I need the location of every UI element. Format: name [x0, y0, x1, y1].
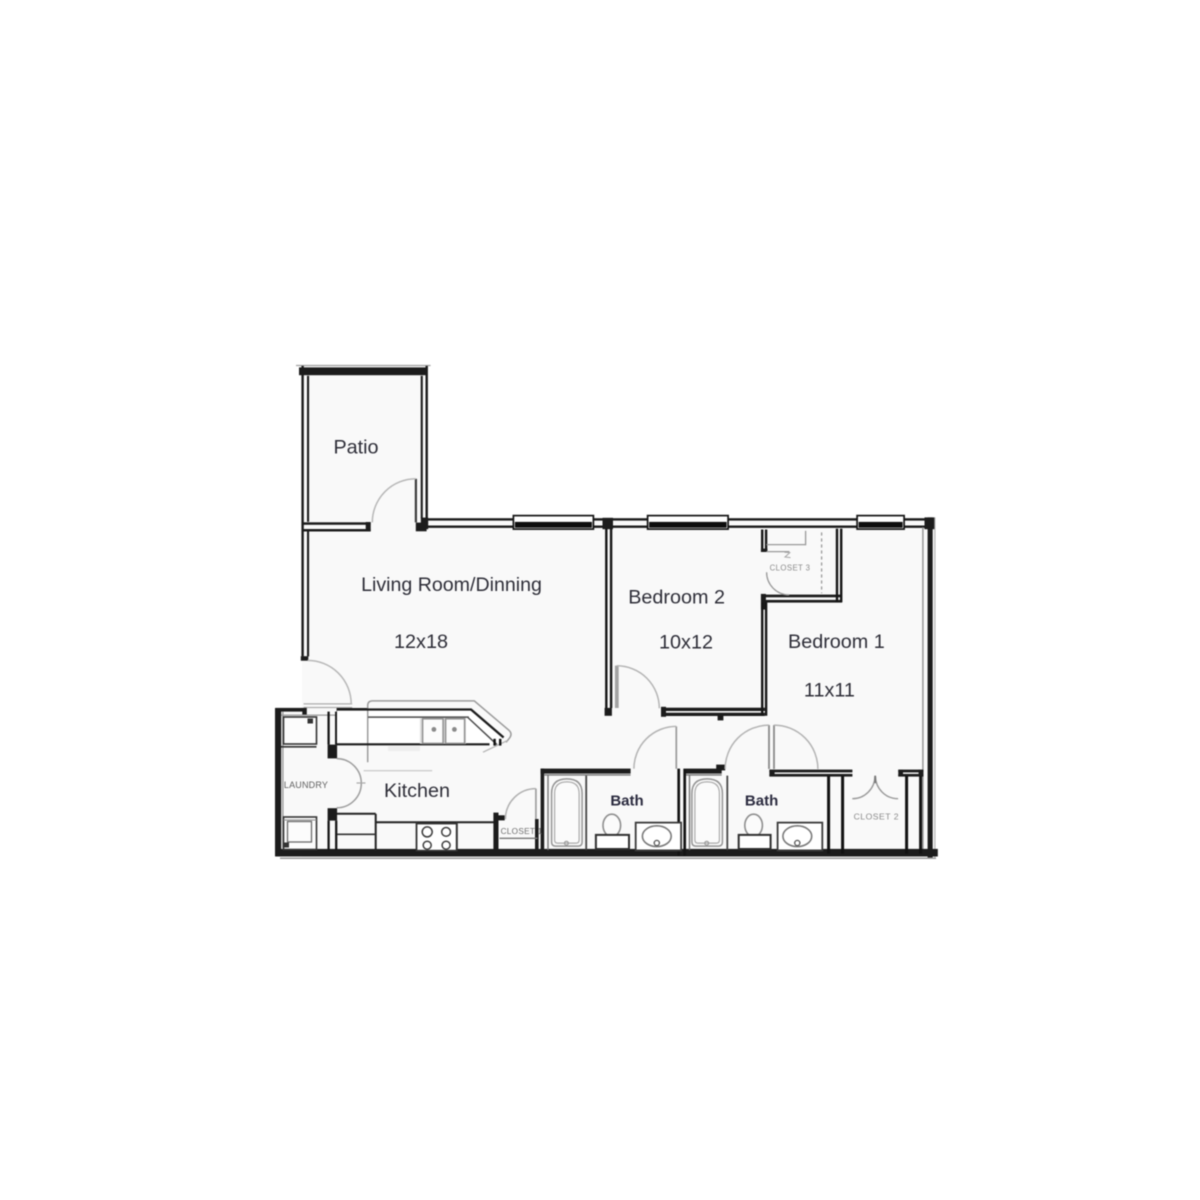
- svg-text:CLOSET 3: CLOSET 3: [770, 564, 811, 573]
- svg-text:12x18: 12x18: [394, 631, 448, 653]
- svg-text:LAUNDRY: LAUNDRY: [284, 780, 328, 790]
- svg-text:Living Room/Dinning: Living Room/Dinning: [361, 574, 542, 596]
- svg-text:10x12: 10x12: [659, 632, 713, 654]
- svg-text:Bedroom 1: Bedroom 1: [788, 631, 885, 653]
- svg-text:Bath: Bath: [745, 792, 778, 809]
- svg-text:CLOSET 1: CLOSET 1: [501, 827, 543, 836]
- svg-text:Patio: Patio: [333, 437, 378, 459]
- svg-text:Bath: Bath: [610, 792, 643, 809]
- svg-text:Kitchen: Kitchen: [384, 780, 450, 802]
- svg-text:Bedroom 2: Bedroom 2: [628, 587, 725, 609]
- svg-text:11x11: 11x11: [804, 679, 855, 701]
- svg-text:CLOSET 2: CLOSET 2: [854, 812, 899, 822]
